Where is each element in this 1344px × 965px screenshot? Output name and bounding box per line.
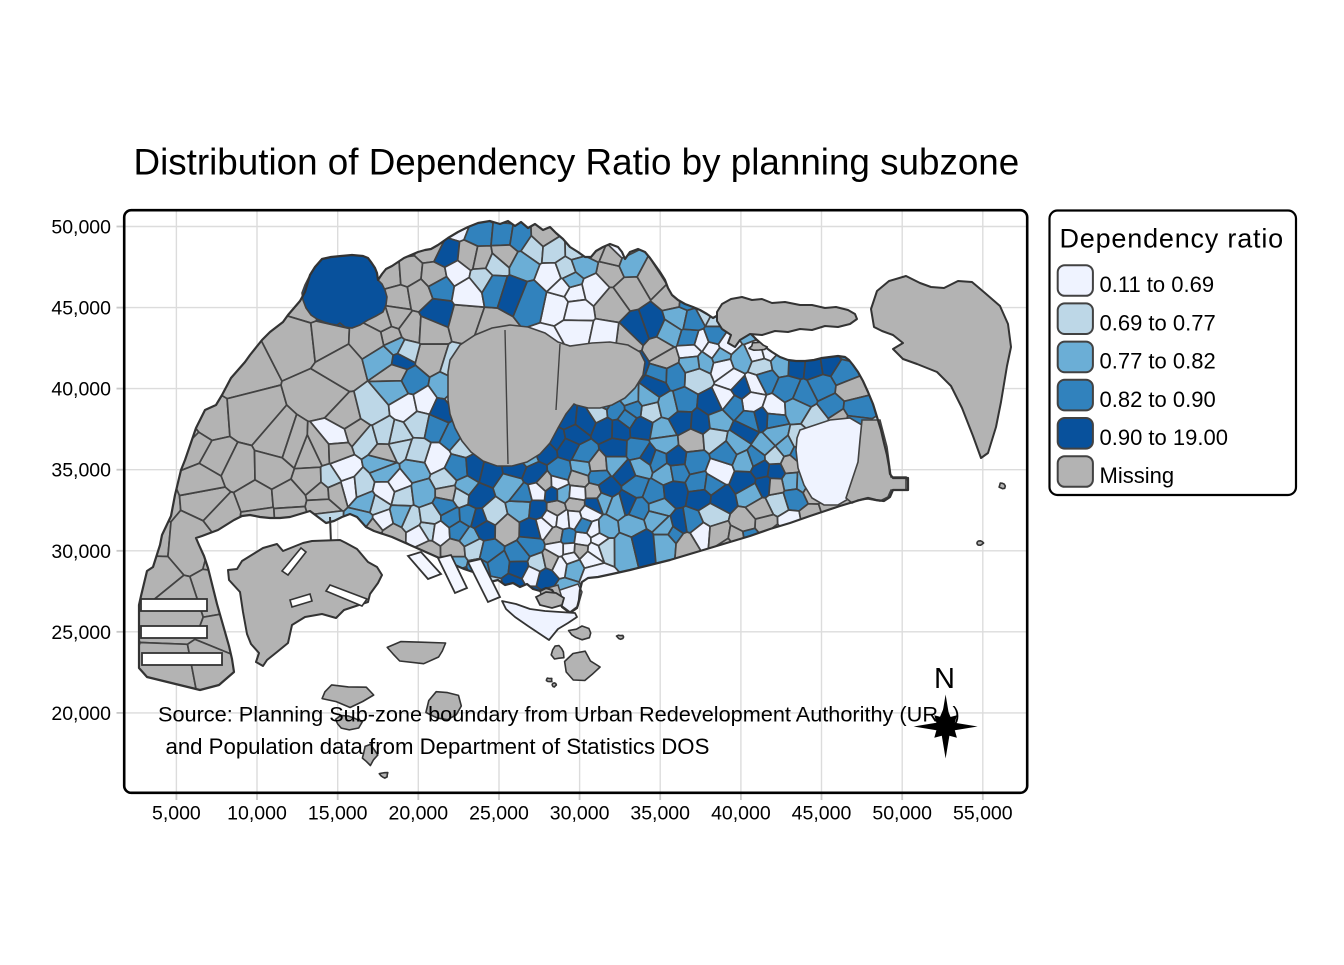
svg-text:and Population data from Depar: and Population data from Department of S… [166,734,710,759]
svg-text:15,000: 15,000 [308,803,368,825]
svg-text:0.69 to 0.77: 0.69 to 0.77 [1100,310,1216,335]
svg-text:Missing: Missing [1100,463,1175,488]
svg-text:10,000: 10,000 [227,803,287,825]
svg-text:5,000: 5,000 [152,803,201,825]
svg-text:20,000: 20,000 [51,703,111,725]
svg-text:45,000: 45,000 [51,298,111,320]
svg-text:0.77 to 0.82: 0.77 to 0.82 [1100,349,1216,374]
svg-text:50,000: 50,000 [872,803,932,825]
svg-text:45,000: 45,000 [792,803,852,825]
svg-text:0.82 to 0.90: 0.82 to 0.90 [1100,387,1216,412]
svg-text:55,000: 55,000 [953,803,1013,825]
svg-text:35,000: 35,000 [51,460,111,482]
svg-text:25,000: 25,000 [51,622,111,644]
svg-text:0.90 to 19.00: 0.90 to 19.00 [1100,425,1228,450]
svg-text:Dependency ratio: Dependency ratio [1060,224,1284,254]
svg-text:0.11 to 0.69: 0.11 to 0.69 [1100,272,1215,297]
svg-text:N: N [934,663,955,695]
svg-text:40,000: 40,000 [51,379,111,401]
svg-text:35,000: 35,000 [630,803,690,825]
svg-text:Distribution of Dependency Rat: Distribution of Dependency Ratio by plan… [134,142,1020,183]
svg-text:25,000: 25,000 [469,803,529,825]
svg-text:20,000: 20,000 [388,803,448,825]
svg-text:50,000: 50,000 [51,217,111,239]
svg-text:40,000: 40,000 [711,803,771,825]
svg-text:Source: Planning Sub-zone boun: Source: Planning Sub-zone boundary from … [158,702,960,727]
svg-text:30,000: 30,000 [550,803,610,825]
svg-text:30,000: 30,000 [51,541,111,563]
